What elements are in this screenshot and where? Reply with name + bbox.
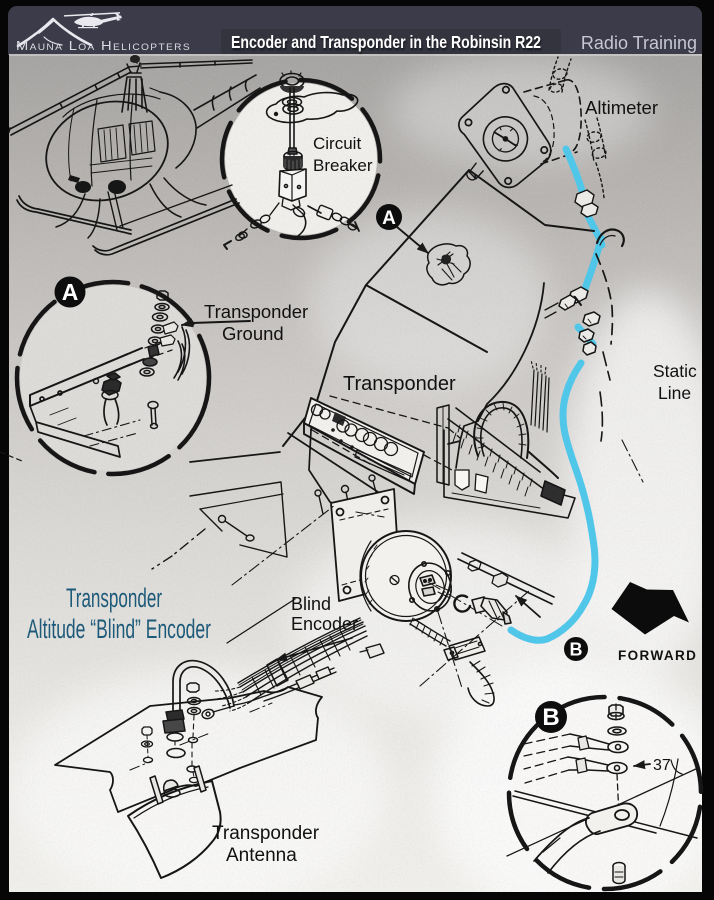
svg-text:A: A (382, 208, 396, 229)
svg-text:Radio Training: Radio Training (581, 33, 697, 53)
svg-text:Line: Line (658, 383, 691, 403)
svg-text:Transponder: Transponder (343, 373, 456, 395)
svg-text:Static: Static (653, 361, 697, 381)
svg-text:Blind: Blind (291, 594, 331, 614)
svg-text:Transponder: Transponder (66, 583, 162, 613)
svg-text:Transponder: Transponder (212, 823, 320, 844)
svg-text:Encoder and Transponder in the: Encoder and Transponder in the Robinsin … (231, 32, 541, 52)
svg-text:B: B (542, 704, 559, 731)
svg-text:Altitude “Blind” Encoder: Altitude “Blind” Encoder (27, 614, 211, 644)
svg-text:A: A (62, 279, 79, 305)
svg-text:FORWARD: FORWARD (618, 648, 697, 663)
svg-text:Altimeter: Altimeter (585, 97, 658, 118)
svg-text:Transponder: Transponder (204, 301, 308, 322)
svg-text:37: 37 (653, 757, 671, 774)
svg-text:Mauna Loa Helicopters: Mauna Loa Helicopters (16, 38, 191, 53)
svg-text:Circuit: Circuit (313, 134, 361, 153)
svg-text:Breaker: Breaker (313, 156, 373, 175)
svg-text:B: B (570, 640, 583, 660)
svg-text:Antenna: Antenna (226, 845, 297, 866)
svg-text:Ground: Ground (222, 323, 284, 344)
